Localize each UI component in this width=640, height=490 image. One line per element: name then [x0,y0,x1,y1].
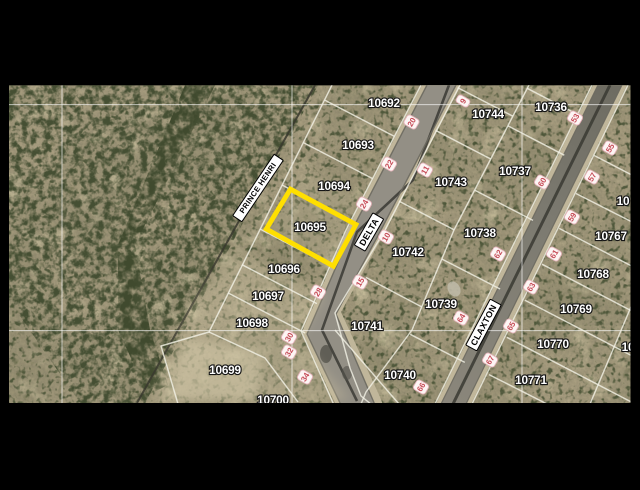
svg-text:10697: 10697 [252,289,284,303]
svg-text:10742: 10742 [392,245,424,259]
svg-text:10693: 10693 [342,138,374,152]
svg-text:10743: 10743 [435,175,467,189]
svg-text:10739: 10739 [425,297,457,311]
svg-text:10698: 10698 [236,316,268,330]
svg-text:10694: 10694 [318,179,350,193]
svg-text:10740: 10740 [384,368,416,382]
svg-text:10699: 10699 [209,363,241,377]
svg-text:10769: 10769 [560,302,592,316]
svg-text:10744: 10744 [472,107,504,121]
svg-text:10737: 10737 [499,164,531,178]
svg-text:10770: 10770 [537,337,569,351]
svg-text:10741: 10741 [351,319,383,333]
svg-text:10696: 10696 [268,262,300,276]
svg-text:10695: 10695 [294,220,326,234]
svg-text:10771: 10771 [515,373,547,387]
svg-text:10692: 10692 [368,96,400,110]
svg-text:10768: 10768 [577,267,609,281]
svg-text:10: 10 [617,194,630,208]
svg-text:10767: 10767 [595,229,627,243]
svg-text:10736: 10736 [535,100,567,114]
svg-text:10738: 10738 [464,226,496,240]
